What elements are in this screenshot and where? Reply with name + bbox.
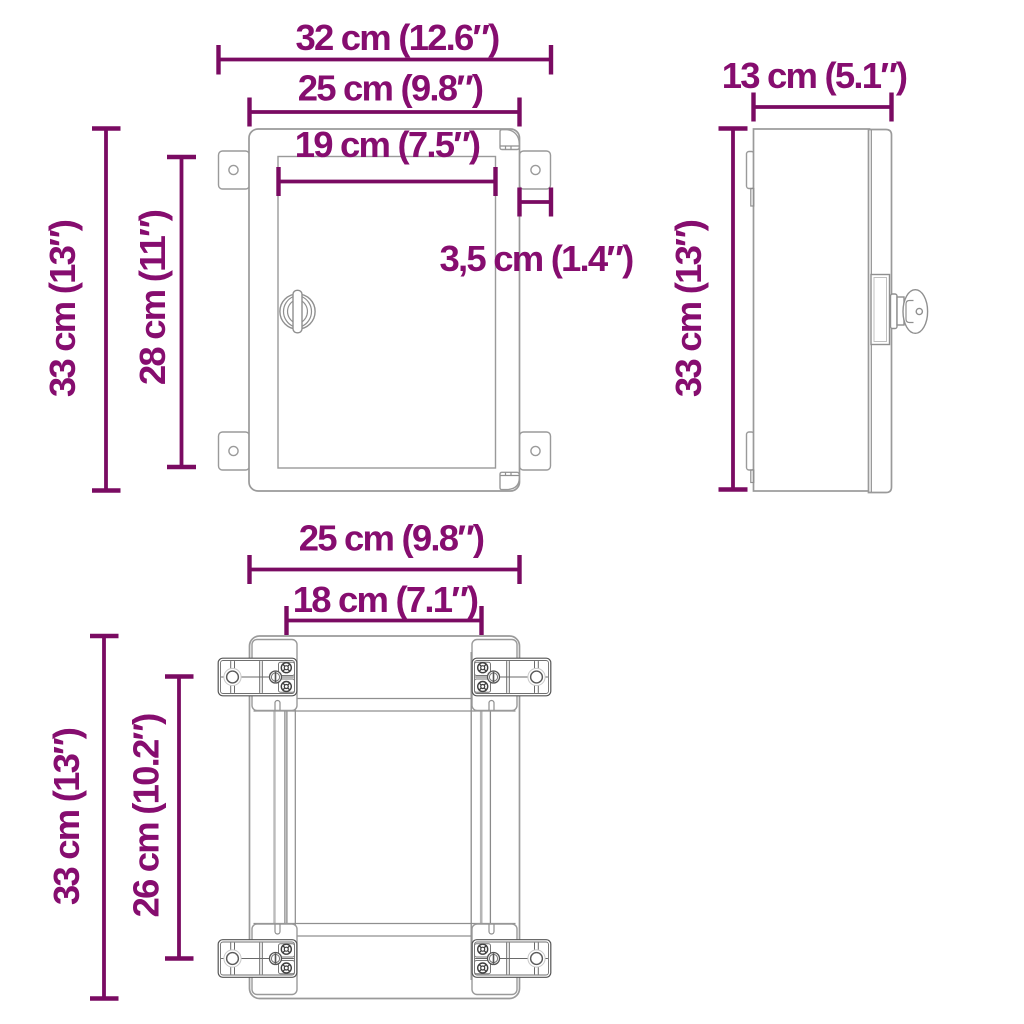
svg-text:25 cm (9.8″): 25 cm (9.8″) (298, 68, 483, 109)
svg-text:25 cm (9.8″): 25 cm (9.8″) (299, 518, 484, 559)
svg-text:33 cm (13″): 33 cm (13″) (42, 220, 83, 397)
svg-text:33 cm (13″): 33 cm (13″) (668, 220, 709, 397)
svg-text:13 cm (5.1″): 13 cm (5.1″) (722, 55, 907, 96)
svg-text:18 cm (7.1″): 18 cm (7.1″) (293, 579, 478, 620)
svg-text:28 cm (11″): 28 cm (11″) (132, 210, 173, 385)
svg-text:32 cm (12.6″): 32 cm (12.6″) (295, 17, 499, 58)
svg-text:3,5 cm (1.4″): 3,5 cm (1.4″) (440, 238, 634, 279)
svg-text:33 cm (13″): 33 cm (13″) (46, 728, 87, 905)
svg-text:19 cm (7.5″): 19 cm (7.5″) (295, 124, 480, 165)
svg-text:26 cm (10.2″): 26 cm (10.2″) (126, 714, 167, 918)
